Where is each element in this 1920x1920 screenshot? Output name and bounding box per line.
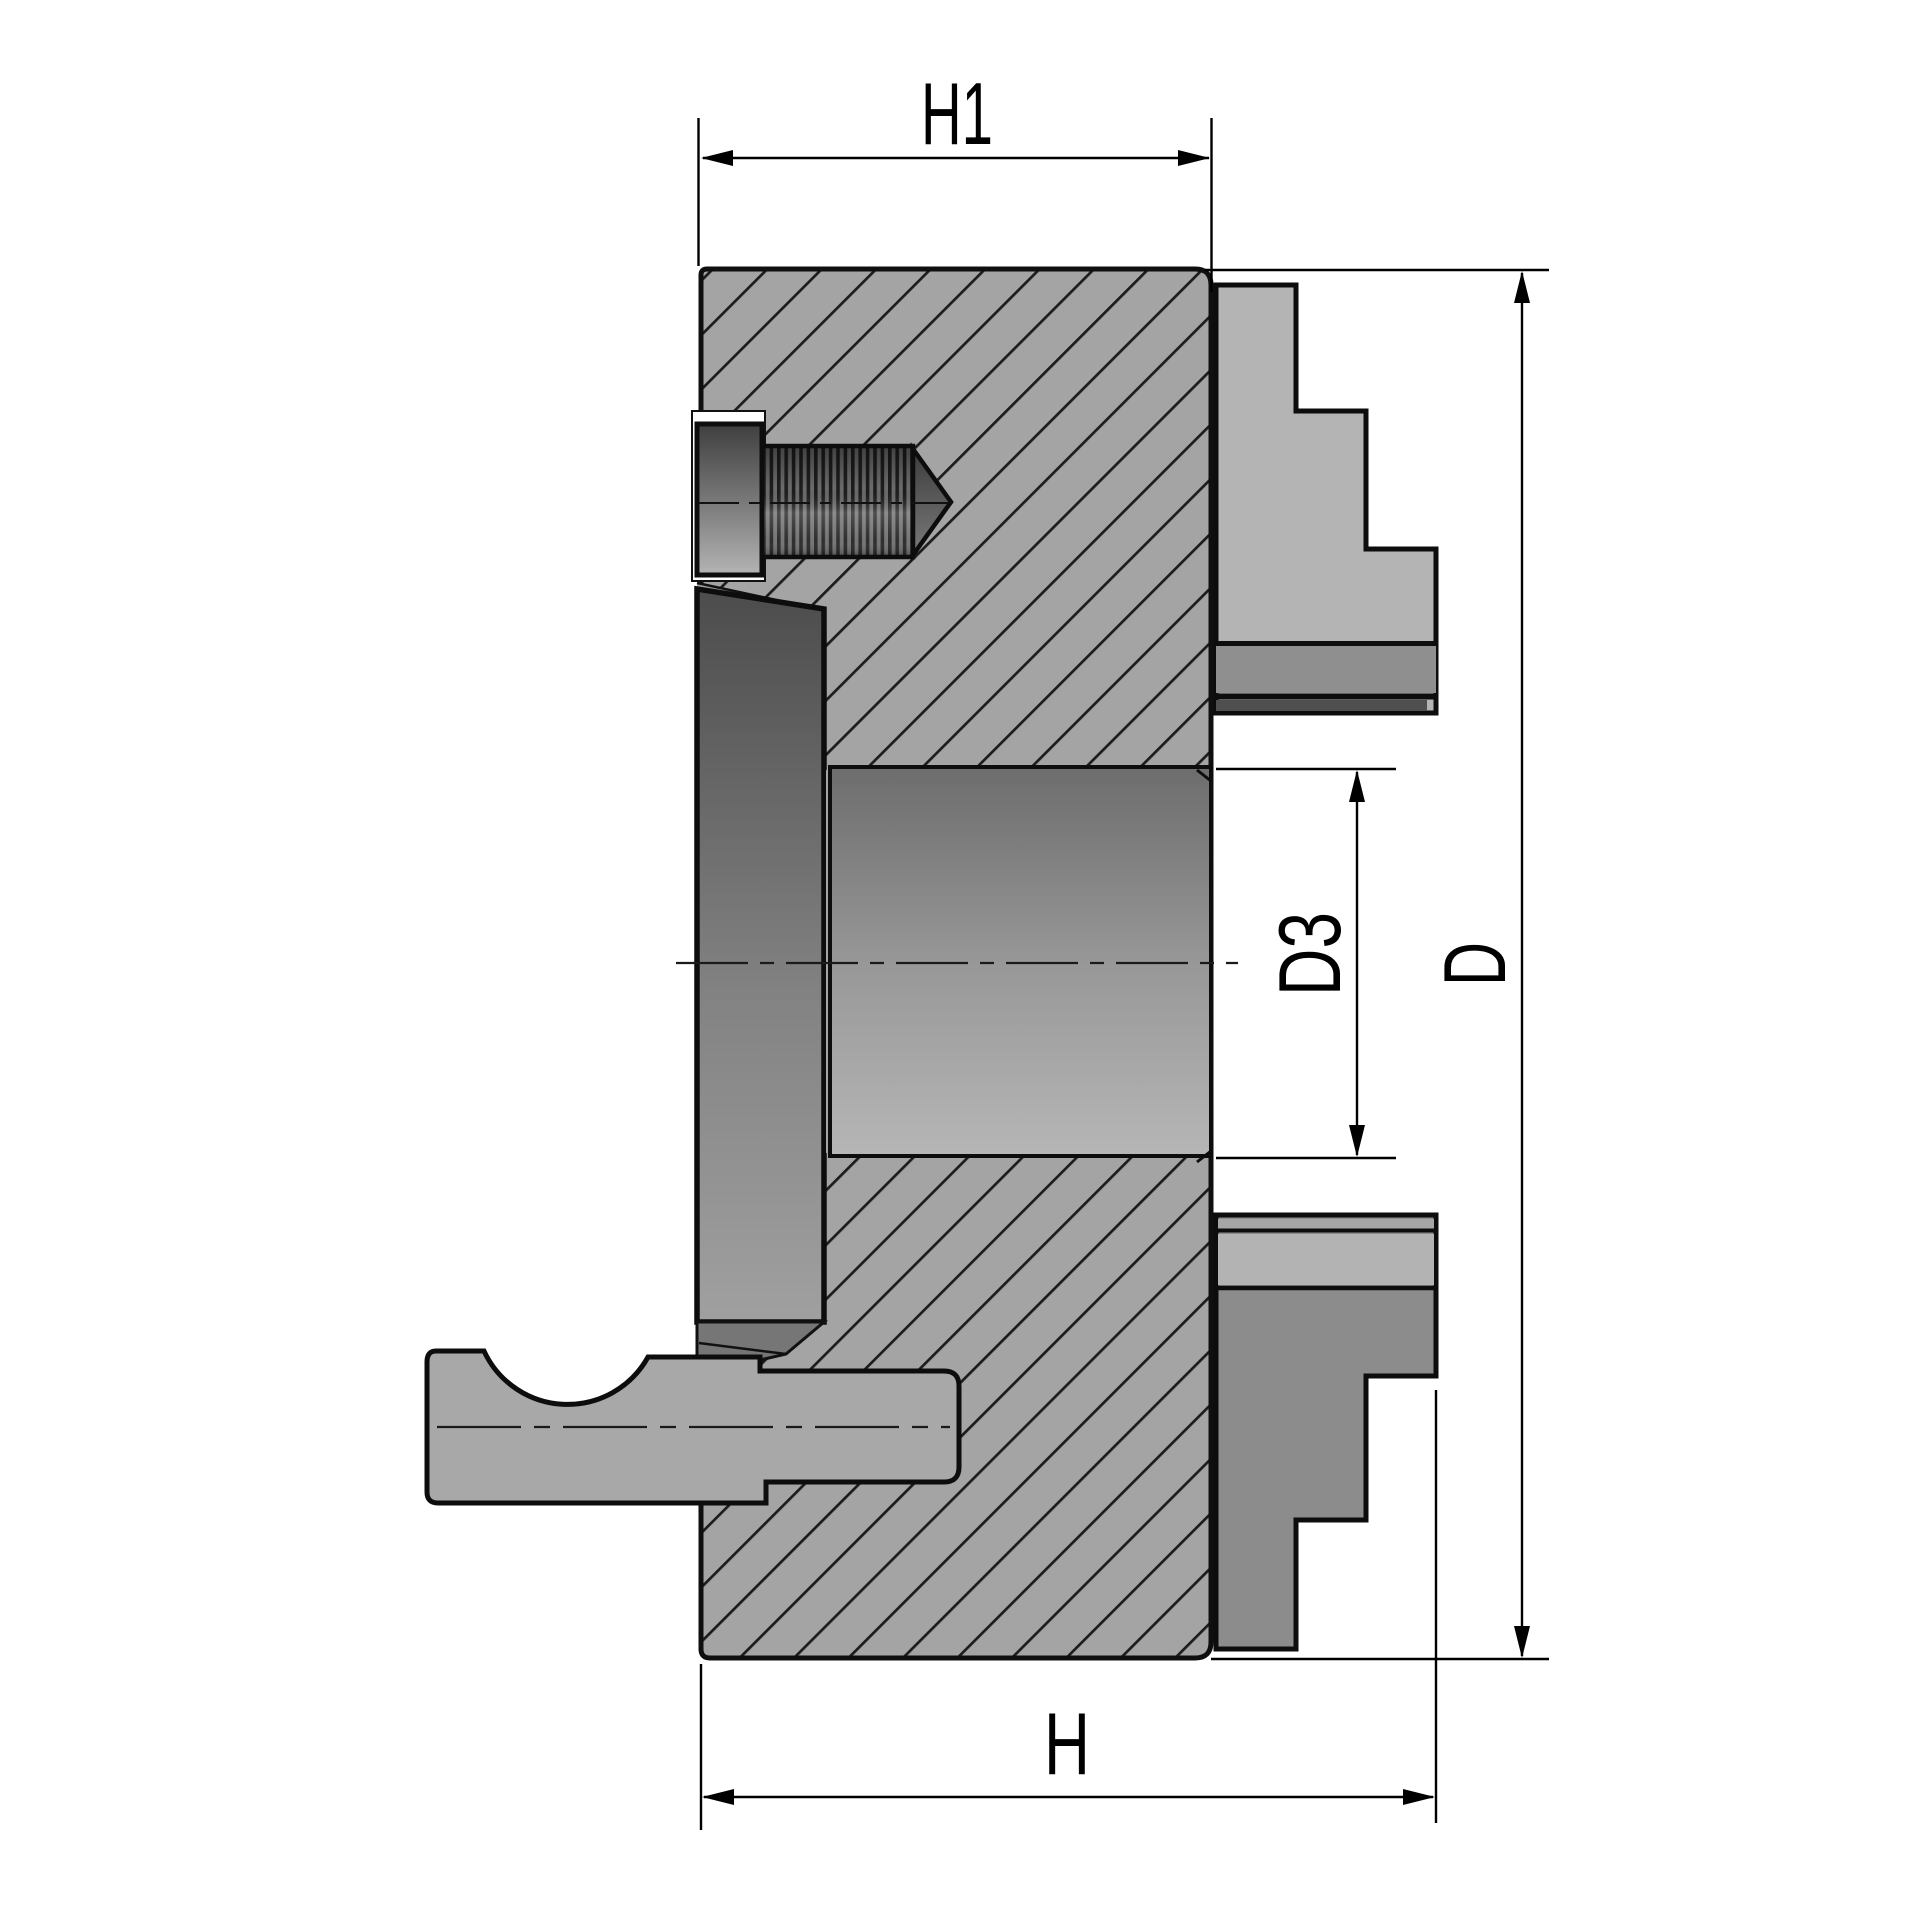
svg-text:D3: D3 xyxy=(1260,912,1359,996)
svg-text:D: D xyxy=(1425,942,1524,986)
svg-text:H1: H1 xyxy=(921,64,993,163)
svg-text:H: H xyxy=(1044,1694,1090,1793)
